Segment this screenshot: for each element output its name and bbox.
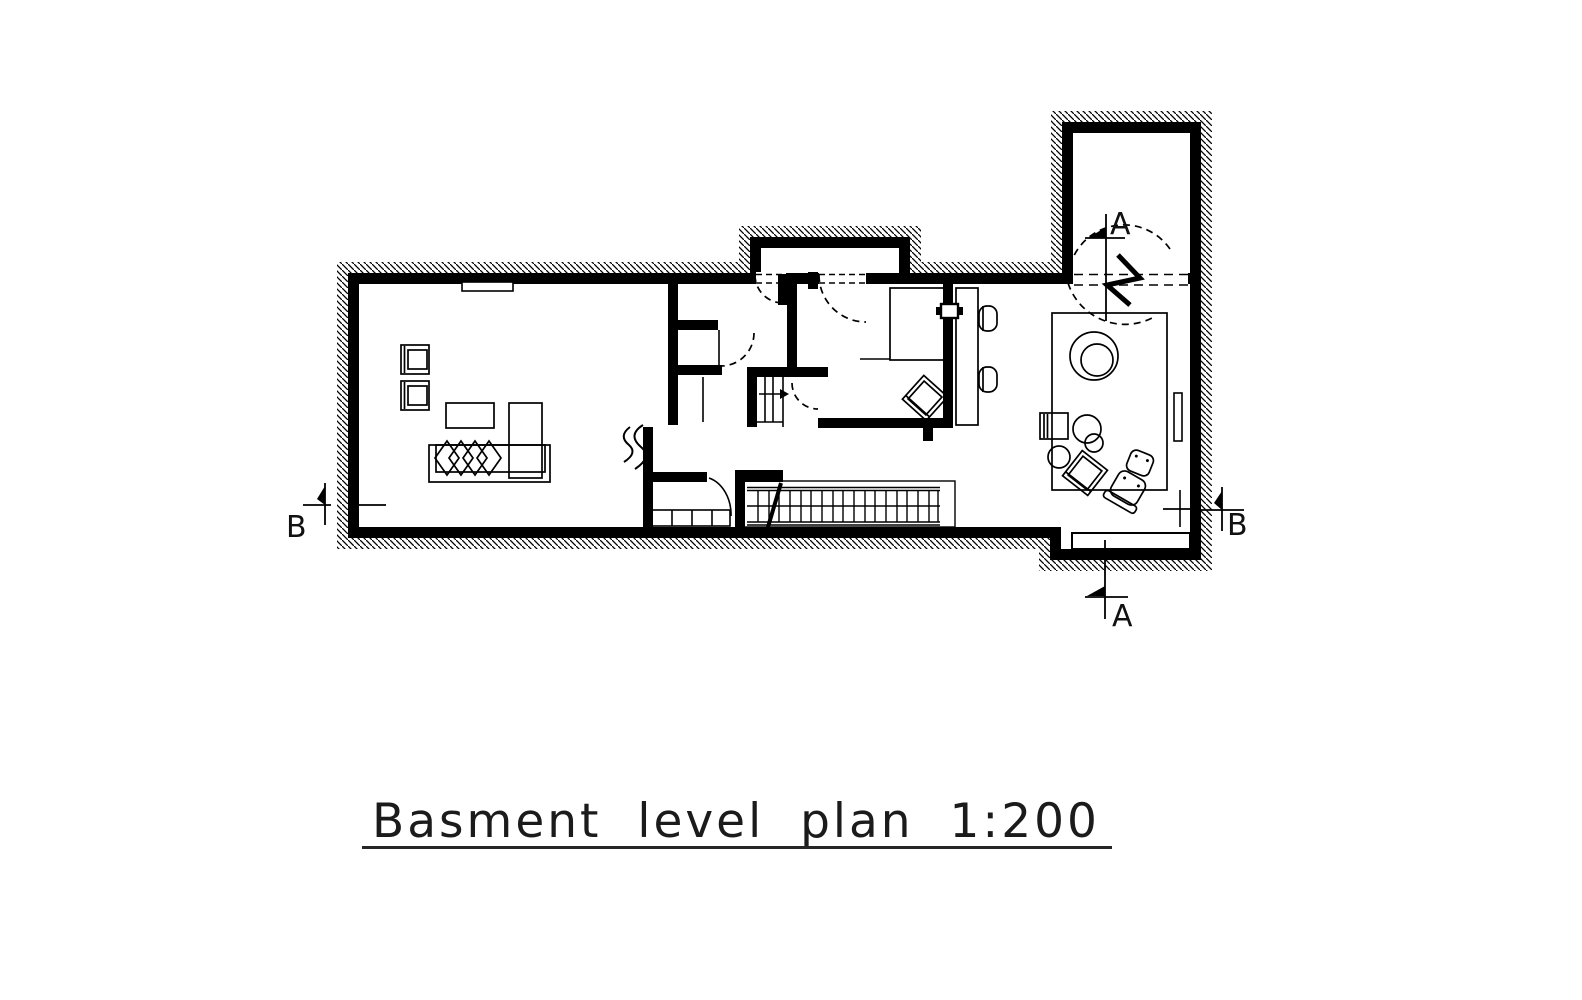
closet: [652, 478, 731, 526]
desk-chair-angled: [902, 375, 947, 420]
coffee-table: [446, 403, 494, 428]
sofa: [429, 445, 550, 482]
door-jamb-entry: [808, 272, 818, 289]
wall-entry-east: [787, 284, 797, 374]
round-table-outer: [1070, 332, 1118, 380]
wall-closet-north: [652, 472, 707, 482]
door-jamb-tab: [923, 428, 933, 441]
title-underline: [362, 846, 1112, 849]
wall-room-b-south: [668, 365, 722, 375]
kitchen-island: [890, 288, 945, 360]
section-letter-b-left: B: [286, 510, 307, 545]
door-arc-stair-hall: [792, 383, 818, 409]
wing-passage-jamb: [1188, 273, 1196, 284]
counter-chair-2: [979, 367, 997, 392]
wall-stair-west: [747, 367, 757, 427]
section-letter-b-right: B: [1227, 508, 1248, 543]
wall-hall-west: [668, 284, 678, 425]
break-opening: [624, 425, 646, 469]
window-niche: [462, 282, 513, 291]
wall-fixture: [936, 304, 963, 318]
armchair-1: [401, 345, 429, 374]
counter-chair-1: [979, 306, 997, 331]
door-arc-room-b: [721, 333, 754, 366]
door-leaf-entry: [778, 274, 787, 305]
stair-main: [743, 481, 955, 527]
lounge-chair-west: [1040, 413, 1068, 439]
wall-wc-south: [668, 320, 718, 330]
stair-small: [757, 377, 789, 427]
lounge-furniture: [1040, 313, 1167, 514]
lounge-rug: [1052, 313, 1167, 490]
wall-hall-south: [818, 418, 953, 428]
window-right-wall: [1174, 393, 1182, 441]
wing-door-zigzag: [1107, 255, 1140, 305]
side-table: [509, 403, 542, 478]
living-room-furniture: [401, 345, 550, 482]
armchair-2: [401, 381, 429, 410]
round-table-inner: [1081, 344, 1113, 376]
sofa-cushions: [435, 441, 501, 475]
floor-plan-drawing: A A B B: [0, 0, 1582, 1000]
section-letter-a-top: A: [1110, 207, 1131, 242]
basement-rear-opening: [1072, 533, 1190, 549]
section-letter-a-bottom: A: [1112, 599, 1133, 634]
stair-arrow-head: [780, 389, 789, 399]
floor-plan-sheet: A A B B Basment level plan 1:200: [0, 0, 1582, 1000]
closet-shelf: [652, 510, 730, 526]
plan-title: Basment level plan 1:200: [372, 794, 1100, 849]
